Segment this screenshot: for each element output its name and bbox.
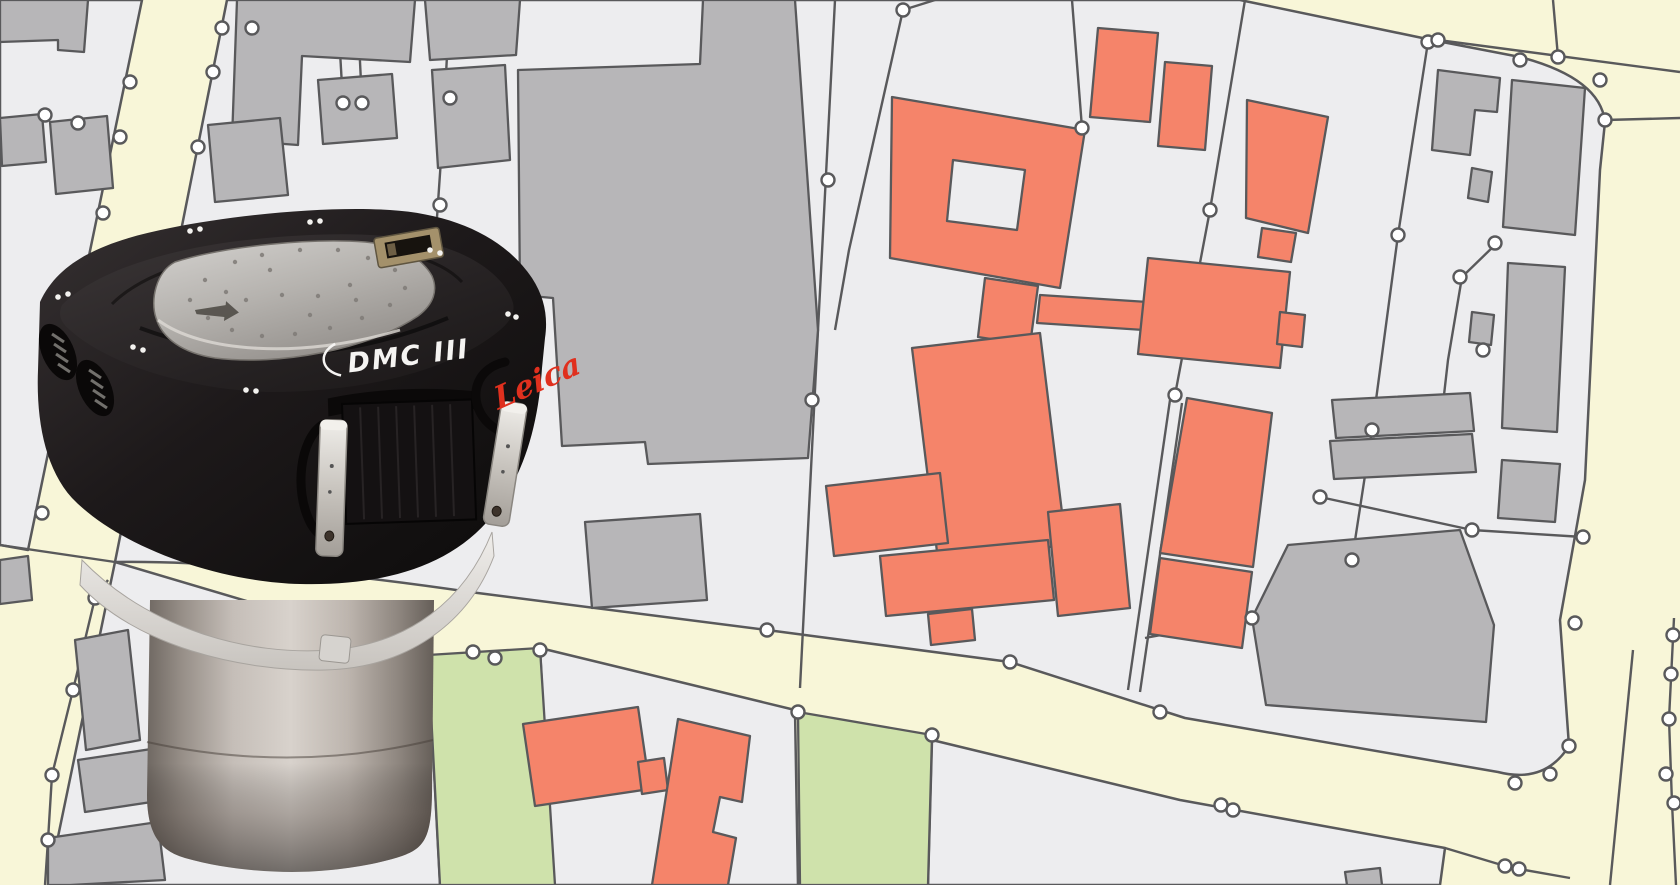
green-area xyxy=(798,712,932,885)
latch-rail-left xyxy=(316,420,348,557)
screenshot-canvas: DMC III Leica xyxy=(0,0,1680,885)
front-ribbed-panel xyxy=(328,387,481,525)
flange-clamp xyxy=(319,635,352,664)
cadastral-map: DMC III Leica xyxy=(0,0,1680,885)
